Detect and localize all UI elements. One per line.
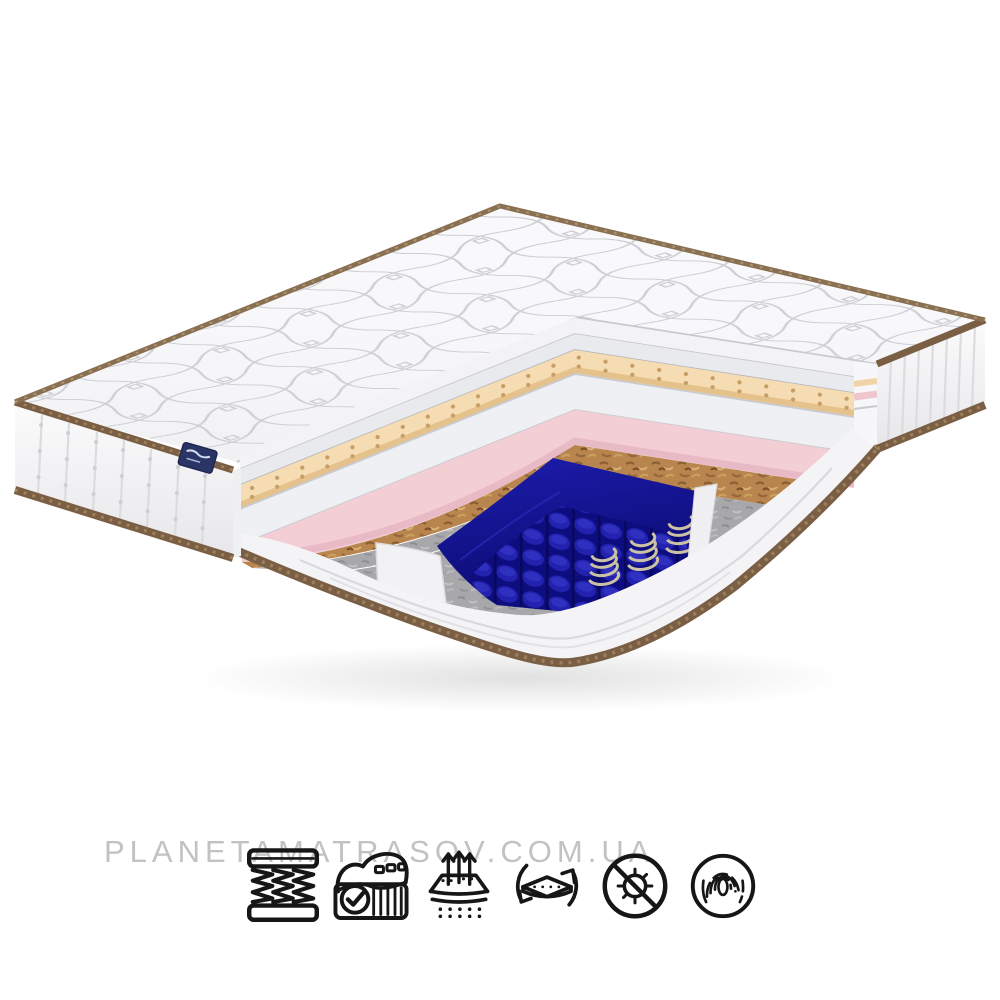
antibacterial-icon <box>595 845 675 927</box>
fingerprint-orthopedic-icon <box>683 845 763 927</box>
feature-icons-row <box>243 845 763 927</box>
product-image: PLANETAMATRASOV.COM.UA <box>0 0 1000 1000</box>
mattress-quality-check-icon <box>331 845 411 927</box>
bonnel-springs-icon <box>243 845 323 927</box>
left-cut-face <box>233 468 241 558</box>
breathability-icon <box>419 845 499 927</box>
flip-rotate-icon <box>507 845 587 927</box>
